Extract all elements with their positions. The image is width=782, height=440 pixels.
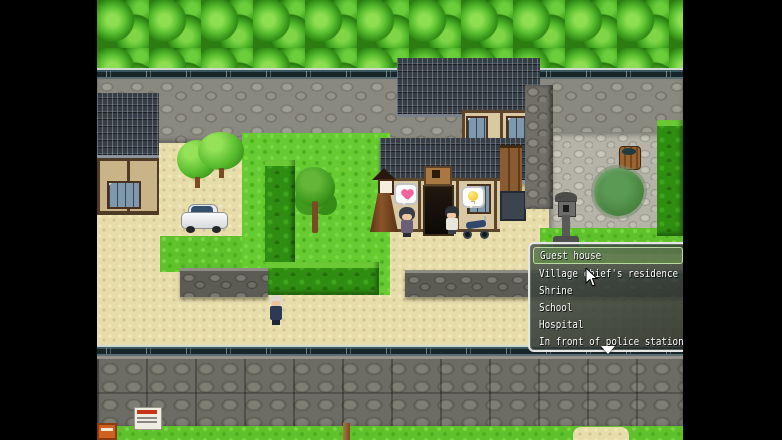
letterbox-right	[683, 0, 782, 440]
left-house-window	[107, 181, 141, 209]
storehouse-wall	[500, 145, 522, 194]
lightbulb-icon	[468, 191, 478, 201]
left-house	[97, 93, 159, 215]
hedge-wall-horizontal	[265, 262, 379, 295]
speech-bubble	[394, 183, 418, 205]
storehouse-door[interactable]	[500, 191, 526, 221]
low-stone-wall-left	[180, 268, 268, 297]
inn-upper-window-1	[466, 116, 488, 140]
forest-trees	[97, 0, 683, 70]
npc-villager-woman[interactable]	[398, 207, 416, 237]
large-stone-wall	[97, 356, 683, 431]
menu-item-school[interactable]: School	[533, 299, 683, 316]
game-viewport[interactable]: Guest house Village chief's residence Sh…	[97, 0, 683, 440]
heart-icon	[403, 191, 413, 201]
stone-wall-column	[525, 85, 553, 209]
destination-choice-window: Guest house Village chief's residence Sh…	[528, 242, 683, 352]
speech-bubble	[461, 186, 485, 208]
left-house-roof	[97, 93, 159, 158]
mouse-cursor-icon	[585, 268, 599, 288]
pine-tree	[293, 165, 337, 235]
menu-item-shrine[interactable]: Shrine	[533, 282, 683, 299]
menu-item-village-chiefs-residence[interactable]: Village chief's residence	[533, 265, 683, 282]
sand-patch	[573, 427, 629, 440]
notice-poster[interactable]	[134, 407, 162, 430]
npc-old-man[interactable]	[268, 295, 285, 325]
menu-item-hospital[interactable]: Hospital	[533, 316, 683, 333]
round-tree-2	[198, 132, 244, 178]
npc-villager-man[interactable]	[444, 206, 460, 234]
inn-upper-roof	[397, 58, 540, 117]
game-screen: Guest house Village chief's residence Sh…	[0, 0, 782, 440]
water-barrel[interactable]	[619, 146, 641, 170]
motorcycle[interactable]	[463, 215, 489, 239]
inn-sign	[424, 166, 452, 186]
guardrail-top	[97, 68, 683, 79]
letterbox-left	[0, 0, 97, 440]
down-arrow-icon[interactable]	[601, 346, 615, 354]
wooden-post	[343, 423, 350, 440]
hedge-right	[657, 120, 683, 236]
menu-item-guest-house[interactable]: Guest house	[533, 247, 683, 264]
corner-sign	[97, 423, 117, 440]
white-car[interactable]	[181, 204, 226, 233]
lantern-lamp	[378, 179, 394, 195]
